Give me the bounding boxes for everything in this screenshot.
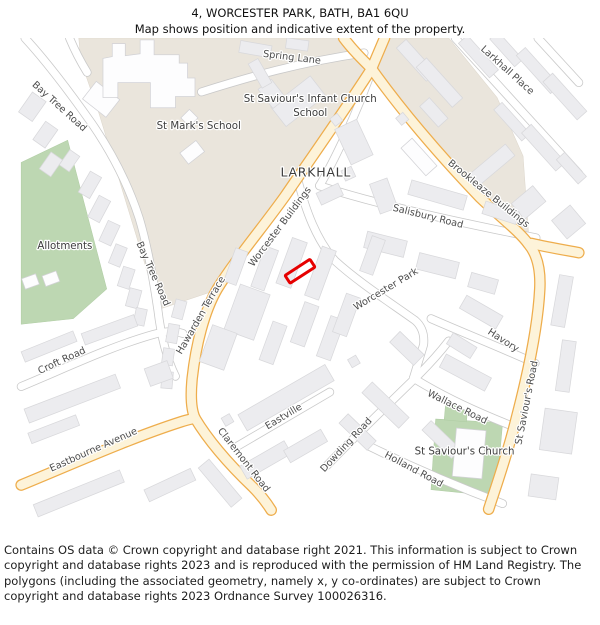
building bbox=[166, 323, 180, 343]
map-label-st-saviours-church: St Saviour's Church bbox=[415, 446, 515, 457]
attribution-text: Contains OS data © Crown copyright and d… bbox=[0, 538, 600, 605]
building bbox=[221, 414, 234, 427]
building bbox=[360, 236, 386, 276]
building bbox=[284, 429, 328, 462]
page-subtitle: Map shows position and indicative extent… bbox=[0, 21, 600, 37]
map-label-larkhall: LARKHALL bbox=[280, 164, 351, 179]
building bbox=[556, 152, 586, 184]
map-label-infant-school-line2: School bbox=[293, 108, 327, 119]
building bbox=[468, 272, 499, 294]
building bbox=[439, 354, 491, 391]
building bbox=[551, 275, 574, 328]
building bbox=[539, 408, 577, 454]
map-container: Spring Lane Larkhall Place Bay Tree Road… bbox=[0, 38, 600, 538]
map-label-worcester-park: Worcester Park bbox=[352, 266, 421, 313]
building bbox=[88, 195, 111, 222]
building bbox=[459, 295, 503, 329]
page-title: 4, WORCESTER PARK, BATH, BA1 6QU bbox=[0, 5, 600, 21]
building bbox=[117, 266, 135, 289]
building bbox=[408, 180, 467, 210]
building bbox=[348, 355, 361, 368]
building bbox=[416, 253, 460, 279]
building bbox=[125, 288, 141, 309]
building bbox=[290, 302, 319, 347]
building bbox=[552, 205, 586, 239]
map-label-infant-school-line1: St Saviour's Infant Church bbox=[244, 94, 377, 105]
building bbox=[108, 244, 127, 267]
building bbox=[332, 293, 360, 337]
building bbox=[335, 119, 373, 165]
building bbox=[555, 340, 576, 393]
building bbox=[305, 246, 337, 300]
building bbox=[528, 474, 559, 500]
building bbox=[259, 321, 287, 365]
report-header: 4, WORCESTER PARK, BATH, BA1 6QU Map sho… bbox=[0, 0, 600, 38]
building bbox=[99, 220, 120, 246]
building bbox=[144, 468, 196, 501]
building bbox=[78, 171, 101, 198]
building bbox=[33, 121, 58, 148]
map-label-allotments: Allotments bbox=[37, 241, 92, 252]
map-label-eastbourne-avenue: Eastbourne Avenue bbox=[48, 426, 139, 475]
map-label-st-marks-school: St Mark's School bbox=[157, 121, 241, 132]
map-canvas: Spring Lane Larkhall Place Bay Tree Road… bbox=[0, 38, 600, 538]
